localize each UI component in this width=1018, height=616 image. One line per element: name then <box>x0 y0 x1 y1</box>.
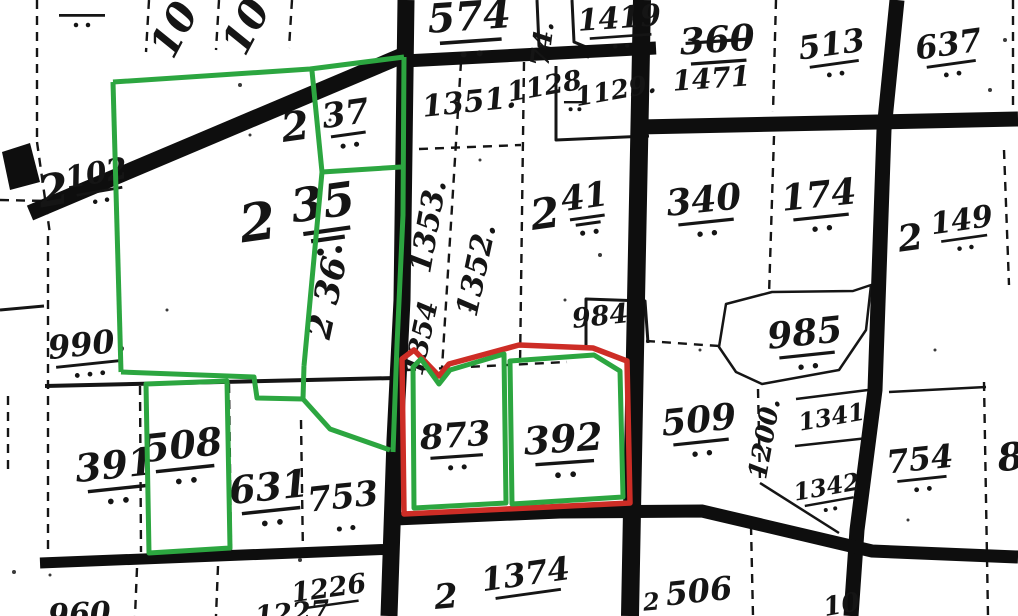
parcel-number: 506 <box>664 569 734 614</box>
cadastral-map: 101057474.1419360147151363721022352372 3… <box>0 0 1018 616</box>
scan-speck <box>12 570 16 574</box>
parcel-number: 960 <box>47 595 111 616</box>
scan-speck <box>249 134 252 137</box>
parcel-number: 392 <box>522 413 604 463</box>
label-dot <box>86 23 91 28</box>
parcel-label-74: 74. <box>525 20 560 69</box>
parcel-label-984: 984 <box>570 298 629 335</box>
parcel-number: 2 <box>641 586 661 616</box>
scan-speck <box>699 349 702 352</box>
parcel-number: 10 <box>821 587 862 616</box>
scan-speck <box>166 309 169 312</box>
parcel-number: 753 <box>305 473 380 520</box>
scan-speck <box>564 299 567 302</box>
parcel-number: 41 <box>558 174 610 220</box>
scan-speck <box>298 558 302 562</box>
parcel-number: 74. <box>525 20 560 69</box>
parcel-label-506: 506 <box>664 569 734 614</box>
parcel-number: 508 <box>141 418 225 471</box>
parcel-number: 985 <box>765 308 844 358</box>
parcel-number: 574 <box>426 0 513 43</box>
parcel-number: 873 <box>417 414 492 459</box>
scan-speck <box>598 253 602 257</box>
parcel-number: 509 <box>659 395 738 445</box>
parcel-number: 1471 <box>671 59 751 97</box>
parcel-label-2: 2 <box>641 586 661 616</box>
label-dot <box>74 23 79 28</box>
parcel-number: 754 <box>885 437 955 482</box>
scan-speck <box>988 88 992 92</box>
scan-speck <box>238 83 242 87</box>
parcel-number: 2 <box>432 576 460 616</box>
parcel-number: 340 <box>664 175 743 225</box>
parcel-label-360: 360 <box>678 16 756 64</box>
parcel-label-1471: 1471 <box>671 59 751 97</box>
parcel-number: 984 <box>570 298 629 335</box>
parcel-label-2: 2 <box>432 576 460 616</box>
parcel-number: 631 <box>227 460 311 513</box>
scan-speck <box>934 349 937 352</box>
scan-speck <box>907 519 910 522</box>
parcel-label-960: 960 <box>47 595 111 616</box>
scan-speck <box>1003 38 1007 42</box>
parcel-number: 174 <box>779 170 858 220</box>
parcel-label-10: 10 <box>821 587 862 616</box>
cadastral-map-page: 101057474.1419360147151363721022352372 3… <box>0 0 1018 616</box>
scan-speck <box>479 159 482 162</box>
parcel-number: 37 <box>319 91 372 137</box>
scan-speck <box>49 574 52 577</box>
label-dot <box>569 107 573 111</box>
road <box>639 119 1018 127</box>
